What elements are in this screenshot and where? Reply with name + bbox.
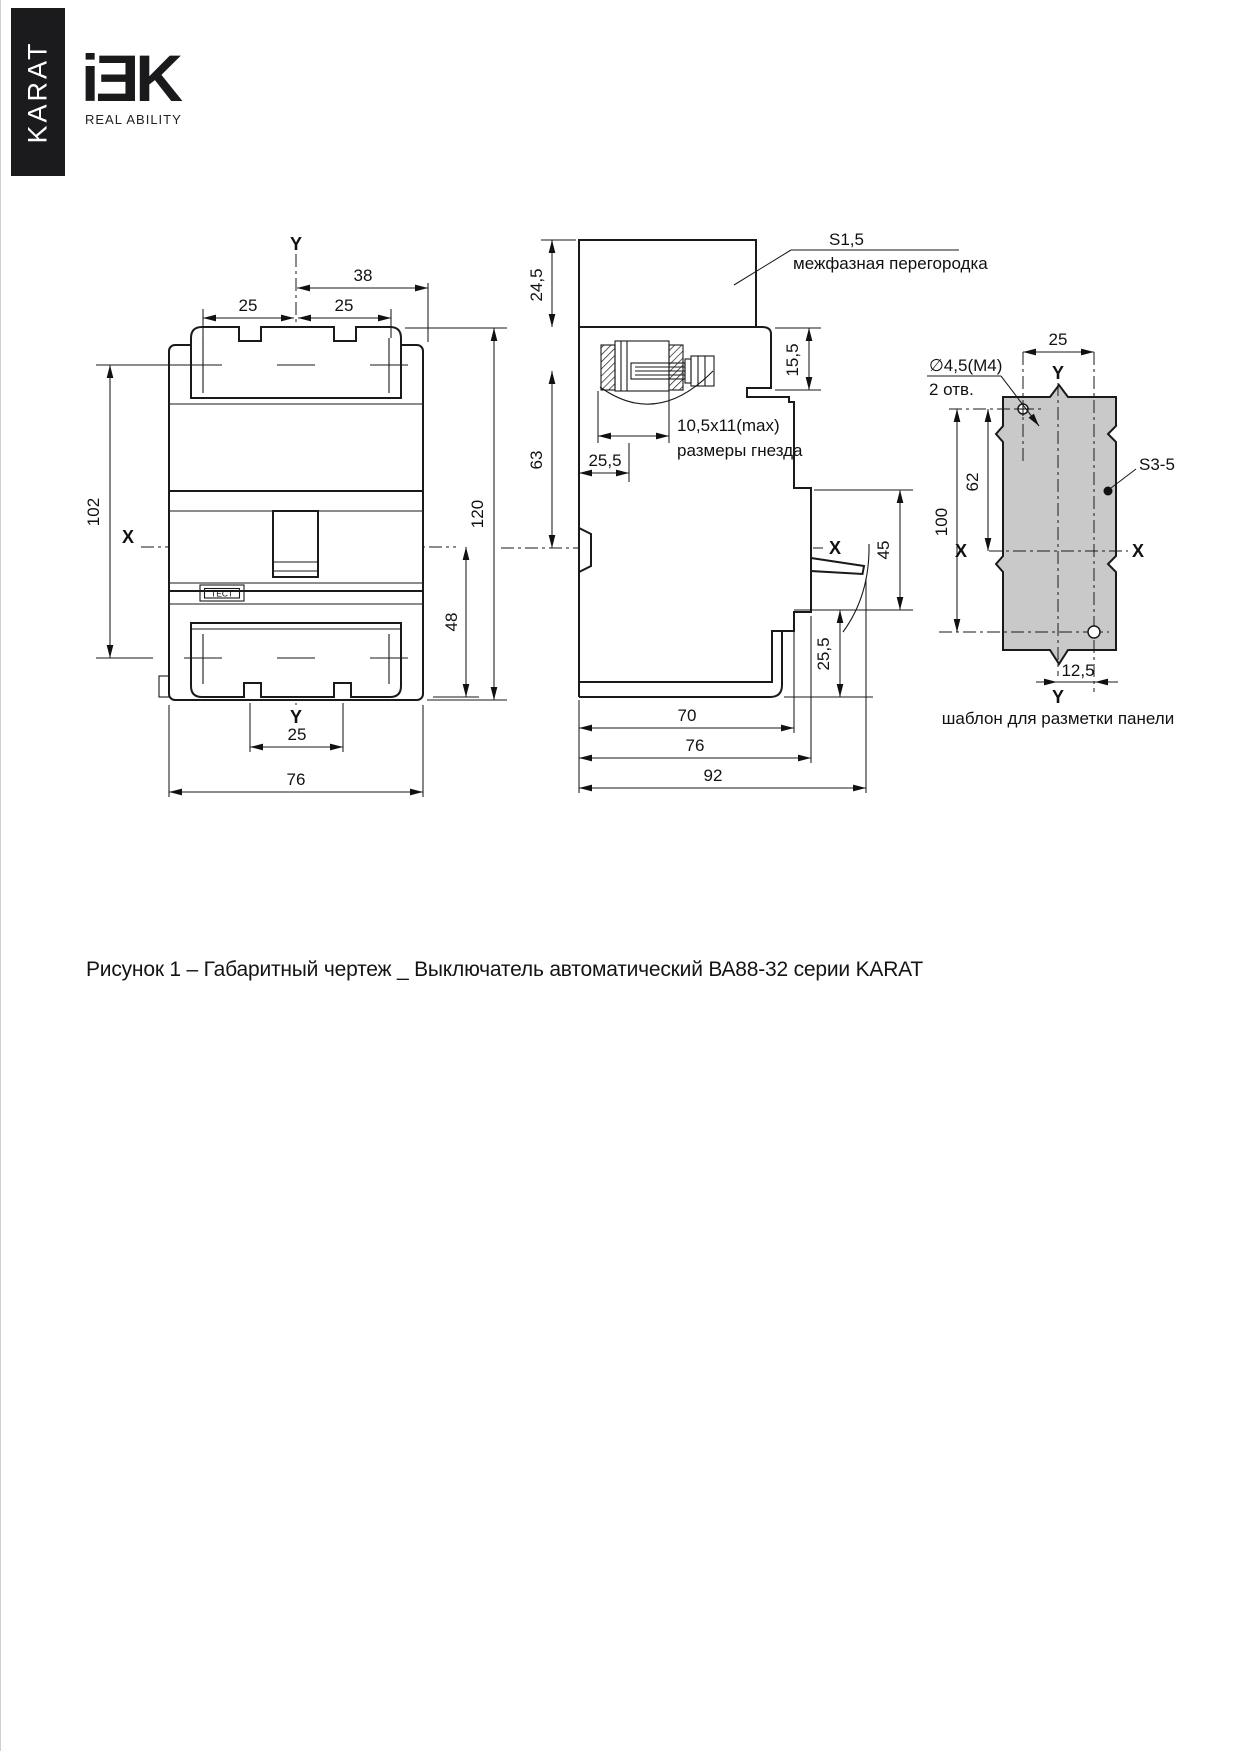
front-axis-x-label: X — [122, 527, 134, 547]
panel-template-caption: шаблон для разметки панели — [942, 709, 1174, 728]
toggle-handle-side — [811, 558, 864, 574]
hole-callout-diameter: ∅4,5(M4) — [929, 356, 1002, 375]
dim-76-front-label: 76 — [287, 770, 306, 789]
breaker-front-body: ТЕСТ — [159, 327, 423, 700]
interphase-barrier — [579, 240, 756, 327]
toggle-handle-front — [273, 511, 318, 577]
front-axis-y-top-label: Y — [290, 234, 302, 254]
dim-25-5-top-label: 25,5 — [588, 451, 621, 470]
side-view: S1,5 межфазная перегородка 24,5 15,5 63 … — [501, 230, 988, 793]
panel-template-view: 25 Y ∅4,5(M4) 2 отв. 62 100 X X S3-5 12,… — [927, 330, 1175, 728]
panel-axis-y-bottom-label: Y — [1052, 687, 1064, 707]
panel-thickness-label: S3-5 — [1139, 455, 1175, 474]
side-axis-x-label: X — [829, 538, 841, 558]
document-page: KARAT iƎK REAL ABILITY — [0, 0, 1242, 1751]
barrier-name-label: межфазная перегородка — [793, 254, 988, 273]
dim-92-label: 92 — [704, 766, 723, 785]
dim-76-side-label: 76 — [686, 736, 705, 755]
figure-caption: Рисунок 1 – Габаритный чертеж _ Выключат… — [86, 958, 923, 982]
dim-102-label: 102 — [84, 498, 103, 526]
dim-25-left-label: 25 — [239, 296, 258, 315]
panel-axis-x-right-label: X — [1132, 541, 1144, 561]
panel-axis-y-top-label: Y — [1052, 363, 1064, 383]
socket-size-label: 10,5x11(max) — [677, 416, 780, 435]
dim-24-5-label: 24,5 — [527, 268, 546, 301]
hole-callout-count: 2 отв. — [929, 380, 974, 399]
dim-63-label: 63 — [527, 451, 546, 470]
dim-38-label: 38 — [354, 266, 373, 285]
bottom-mounting-hole — [1088, 626, 1100, 638]
dimensional-drawing: ТЕСТ Y 38 25 — [1, 0, 1242, 840]
dim-100-label: 100 — [932, 508, 951, 536]
barrier-thickness-label: S1,5 — [829, 230, 864, 249]
dim-15-5-label: 15,5 — [783, 343, 802, 376]
front-view: ТЕСТ Y 38 25 — [84, 234, 507, 797]
dim-70-label: 70 — [678, 706, 697, 725]
dim-120-label: 120 — [468, 500, 487, 528]
test-button-label: ТЕСТ — [211, 589, 233, 599]
dim-25-bottom-label: 25 — [288, 725, 307, 744]
front-axis-y-bottom-label: Y — [290, 707, 302, 727]
breaker-side-body — [579, 240, 869, 697]
socket-name-label: размеры гнезда — [677, 441, 803, 460]
panel-plate — [996, 385, 1116, 664]
panel-axis-x-left-label: X — [955, 541, 967, 561]
dim-62-label: 62 — [963, 473, 982, 492]
dim-25-right-label: 25 — [335, 296, 354, 315]
dim-25-panel-label: 25 — [1049, 330, 1068, 349]
dim-45-label: 45 — [874, 541, 893, 560]
dim-48-label: 48 — [442, 613, 461, 632]
dim-12-5-label: 12,5 — [1061, 661, 1094, 680]
dim-25-5-bottom-label: 25,5 — [814, 637, 833, 670]
